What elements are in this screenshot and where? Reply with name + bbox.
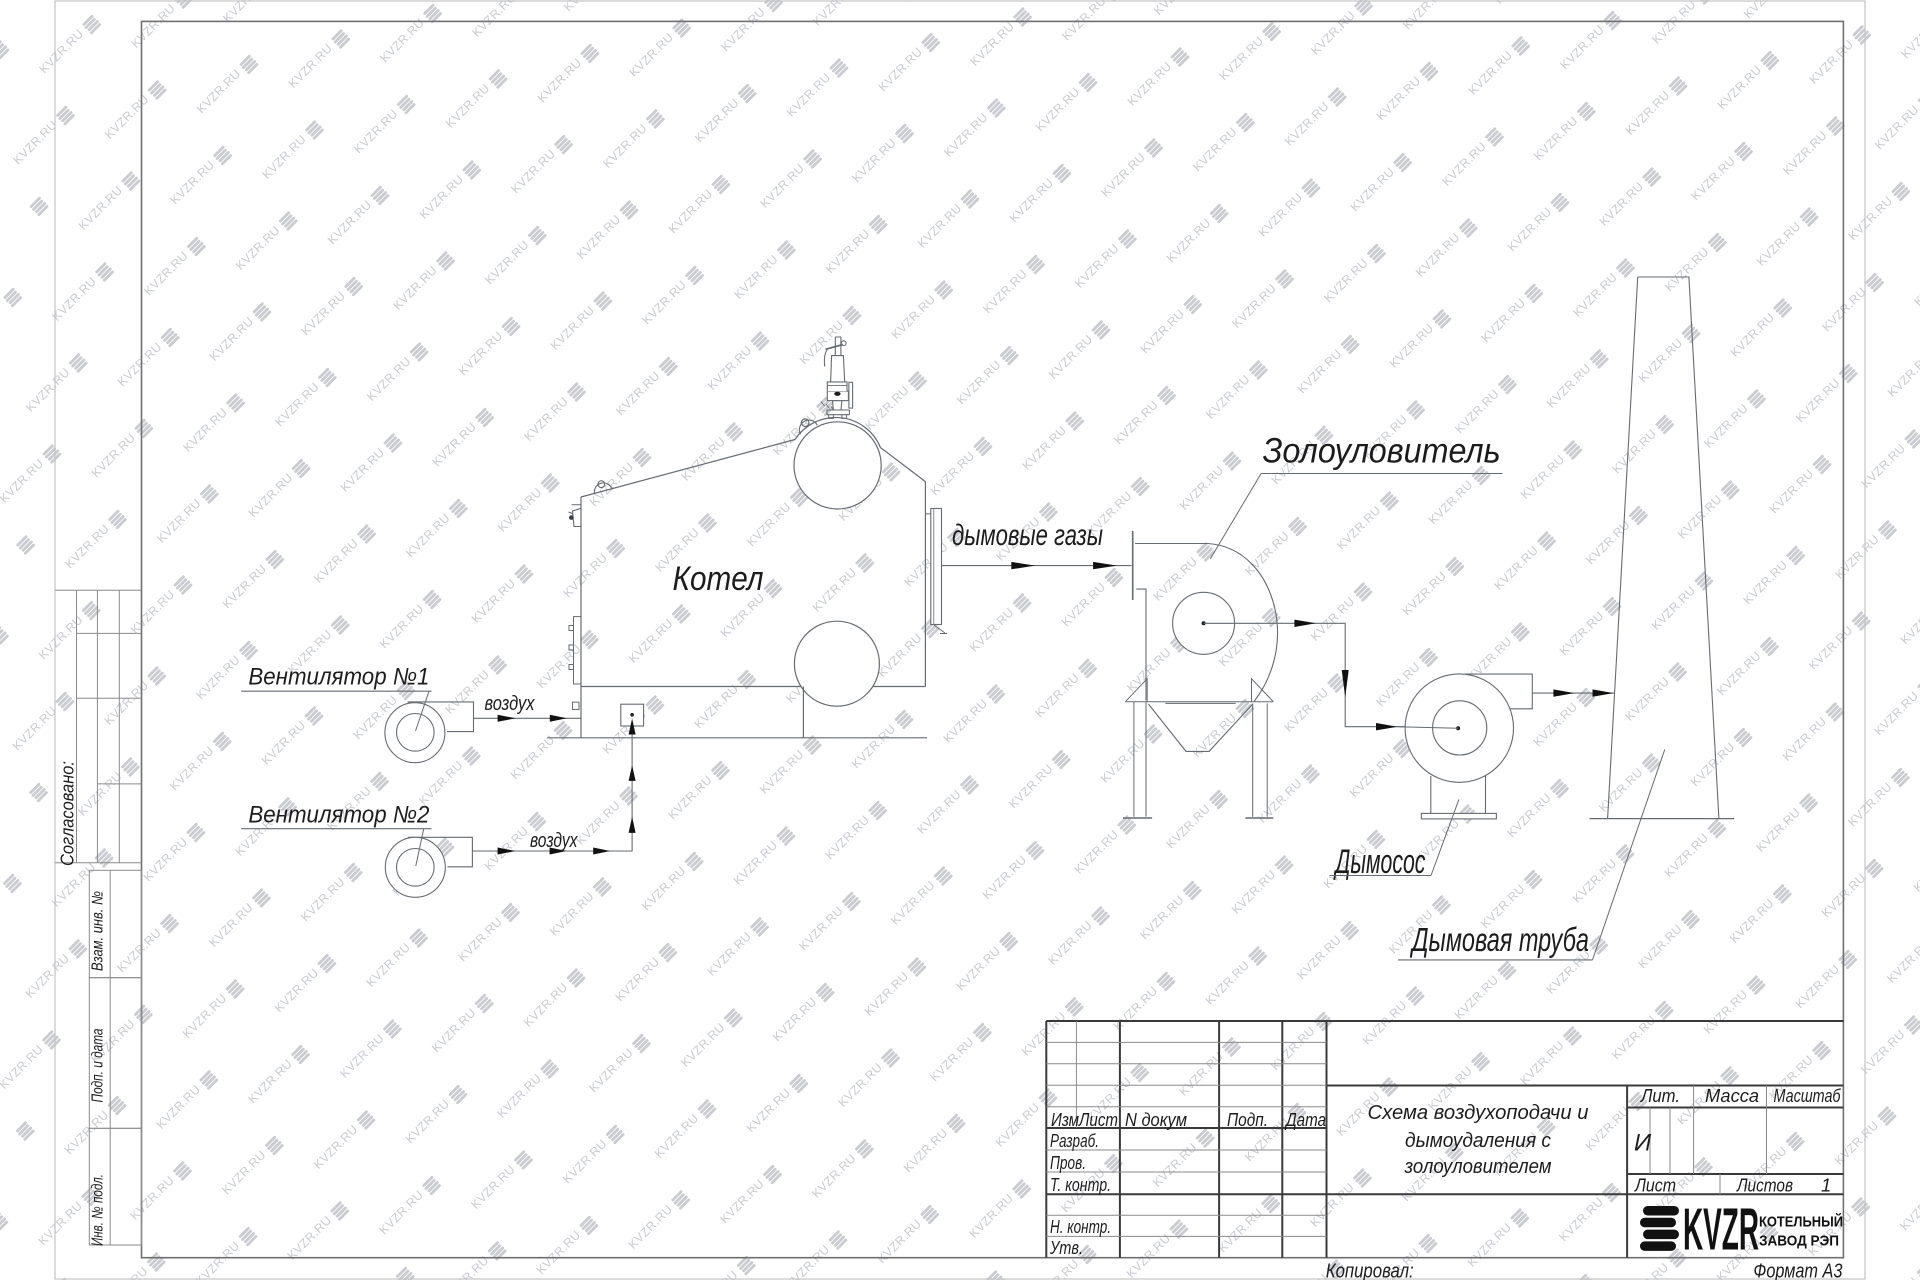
svg-text:Золоуловитель: Золоуловитель [1263,432,1501,471]
svg-text:Вентилятор №1: Вентилятор №1 [248,664,429,691]
svg-text:KVZR: KVZR [1683,1197,1759,1263]
svg-text:Копировал:: Копировал: [1326,1261,1414,1280]
svg-text:Дымовая труба: Дымовая труба [1409,921,1589,958]
svg-text:дымоудаления с: дымоудаления с [1405,1129,1552,1152]
svg-text:Лист: Лист [1634,1175,1676,1196]
svg-text:Листов: Листов [1736,1175,1793,1196]
svg-text:Подп.: Подп. [1227,1109,1268,1130]
svg-text:И: И [1634,1130,1652,1157]
svg-text:ЗАВОД РЭП: ЗАВОД РЭП [1759,1233,1839,1250]
svg-text:дымовые газы: дымовые газы [952,519,1103,552]
svg-text:Масштаб: Масштаб [1774,1086,1842,1106]
svg-text:Т. контр.: Т. контр. [1050,1174,1111,1195]
svg-text:Подп. и дата: Подп. и дата [90,1028,107,1102]
svg-text:ИзмЛист: ИзмЛист [1051,1109,1118,1130]
svg-text:Согласовано:: Согласовано: [58,761,78,866]
svg-text:Н. контр.: Н. контр. [1050,1216,1111,1237]
svg-text:N докум: N докум [1125,1109,1187,1130]
svg-text:Инв. № подл.: Инв. № подл. [90,1174,107,1246]
svg-text:воздух: воздух [485,693,536,715]
svg-text:Формат А3: Формат А3 [1753,1261,1842,1280]
svg-text:Дата: Дата [1284,1109,1326,1130]
svg-text:золоуловителем: золоуловителем [1404,1155,1552,1178]
svg-text:Схема воздухоподачи и: Схема воздухоподачи и [1368,1101,1589,1124]
svg-text:Утв.: Утв. [1049,1237,1083,1258]
svg-text:Вентилятор №2: Вентилятор №2 [248,802,429,829]
svg-text:КОТЕЛЬНЫЙ: КОТЕЛЬНЫЙ [1759,1213,1843,1231]
svg-text:Взам. инв. №: Взам. инв. № [90,891,107,971]
svg-text:1: 1 [1821,1175,1831,1196]
svg-text:Пров.: Пров. [1050,1152,1086,1173]
svg-text:Котел: Котел [673,560,764,598]
svg-text:Разраб.: Разраб. [1050,1130,1099,1151]
svg-text:Лит.: Лит. [1640,1086,1680,1106]
svg-text:воздух: воздух [530,830,578,852]
svg-text:Масса: Масса [1705,1086,1759,1106]
